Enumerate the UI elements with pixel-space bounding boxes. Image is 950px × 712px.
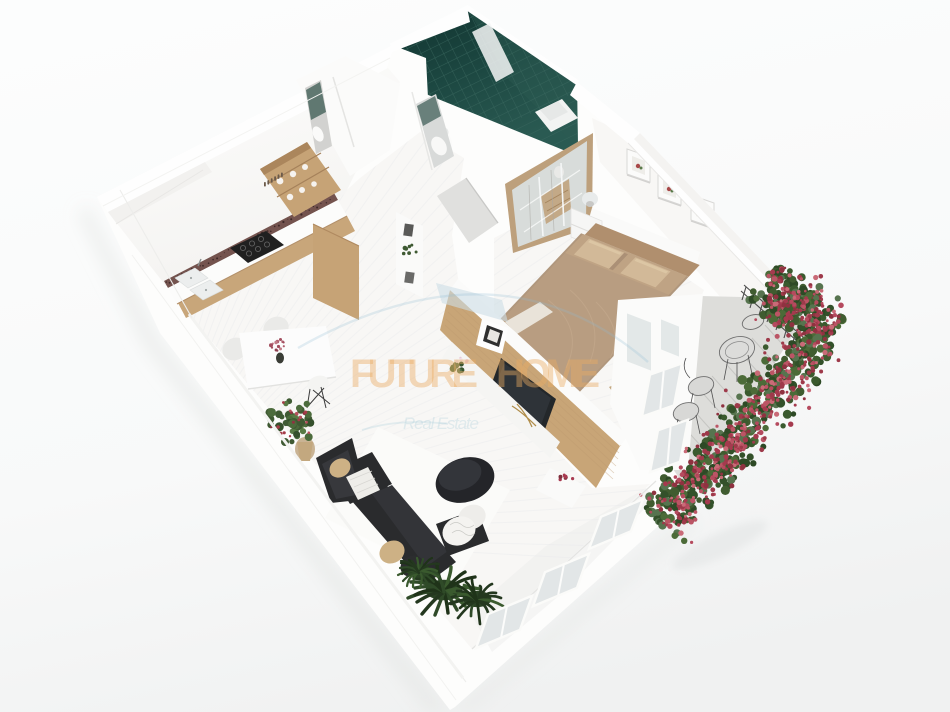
svg-text:Real Estate: Real Estate [403,414,479,433]
svg-text:HOME: HOME [496,352,600,396]
svg-text:FUTURE: FUTURE [350,352,478,396]
